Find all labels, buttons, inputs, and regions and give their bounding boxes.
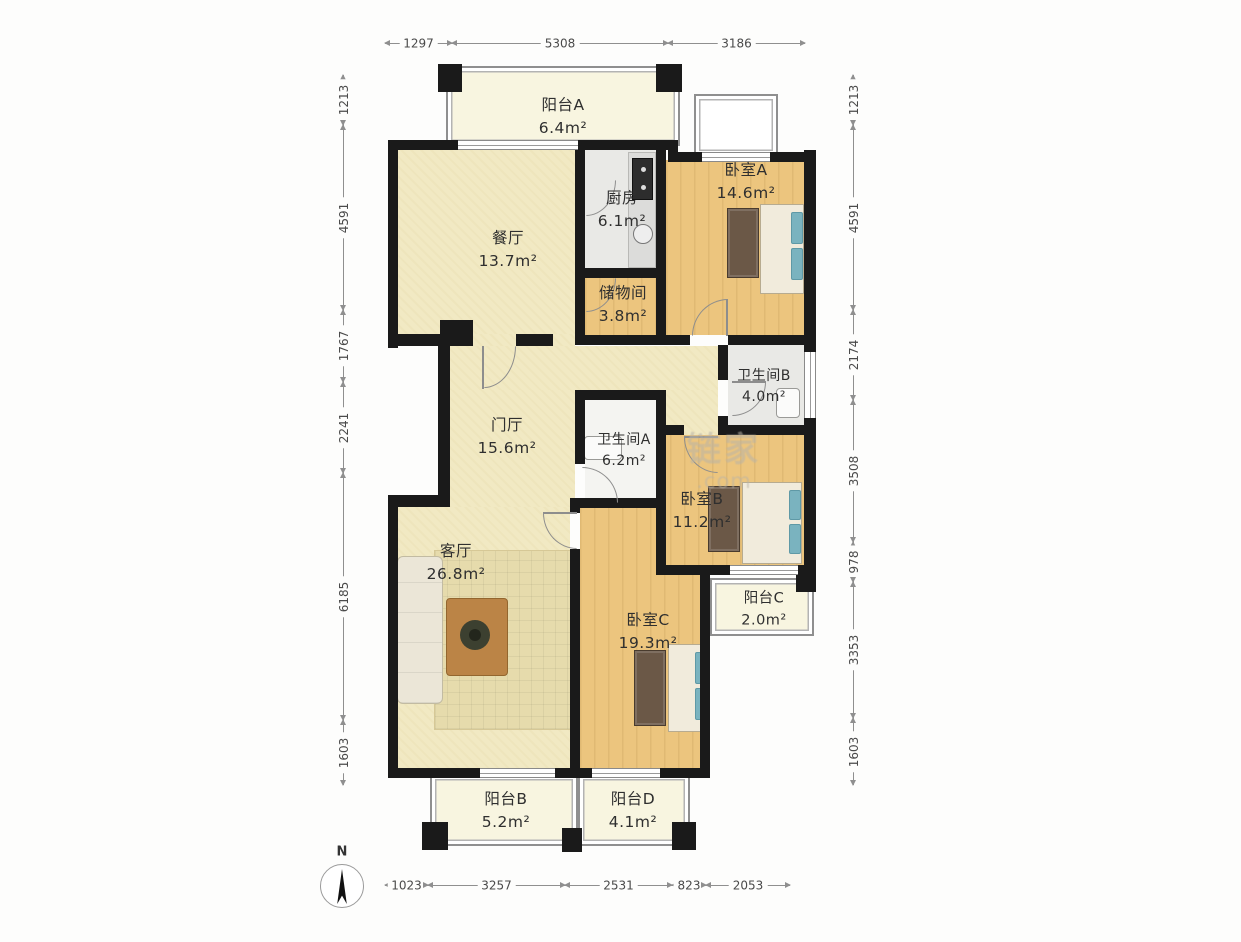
room-name: 卫生间A: [597, 430, 651, 451]
wall-post: [438, 64, 462, 92]
plant-icon: [460, 620, 490, 650]
north-label: N: [337, 845, 348, 860]
room-balcony-b-label: 阳台B 5.2m²: [482, 788, 530, 835]
dim-bottom-segment: 1023: [385, 885, 428, 886]
wall: [575, 268, 666, 278]
wall: [700, 565, 710, 778]
room-hall-label: 门厅 15.6m²: [478, 414, 537, 461]
bedroom-a-bay-window: [694, 94, 778, 156]
room-area: 26.8m²: [427, 563, 486, 586]
wall-post: [656, 64, 682, 92]
wall: [438, 334, 450, 507]
room-bedroom-a-label: 卧室A 14.6m²: [717, 159, 776, 206]
dim-value: 1023: [387, 878, 426, 892]
dim-bottom-segment: 2531: [565, 885, 672, 886]
pillow: [791, 248, 803, 280]
bedroom-c-balcony-d-door: [592, 768, 660, 778]
wall: [656, 150, 666, 345]
dim-right-segment: 1603: [853, 718, 854, 785]
dim-value: 5308: [541, 36, 580, 50]
dim-value: 3508: [847, 451, 861, 492]
dim-value: 1767: [337, 326, 351, 367]
room-name: 储物间: [599, 282, 647, 305]
room-area: 3.8m²: [599, 305, 647, 328]
dim-value: 1603: [337, 732, 351, 773]
wall: [575, 390, 585, 464]
room-area: 6.2m²: [597, 451, 651, 472]
room-name: 卫生间B: [737, 366, 791, 387]
dim-value: 6185: [337, 576, 351, 617]
room-name: 卧室A: [717, 159, 776, 182]
dim-left-segment: 2241: [343, 382, 344, 473]
pillow: [789, 524, 801, 554]
dim-left-segment: 6185: [343, 473, 344, 720]
bedroom-b-door-leaf: [684, 436, 718, 438]
wall: [668, 152, 702, 162]
room-area: 15.6m²: [478, 437, 537, 460]
dim-value: 1603: [847, 731, 861, 772]
room-balcony-c-label: 阳台C 2.0m²: [741, 588, 787, 632]
room-name: 卧室B: [673, 488, 732, 511]
wall-post: [796, 574, 816, 592]
room-storage-label: 储物间 3.8m²: [599, 282, 647, 329]
room-name: 阳台D: [609, 788, 657, 811]
dim-left-segment: 1213: [343, 75, 344, 125]
wall: [388, 140, 460, 150]
dim-right-segment: 3508: [853, 400, 854, 542]
dim-top-segment: 3186: [668, 43, 805, 44]
wall-post: [562, 828, 582, 852]
room-area: 4.1m²: [609, 811, 657, 834]
dim-value: 2531: [599, 878, 638, 892]
wall: [576, 140, 670, 150]
dim-right-segment: 978: [853, 542, 854, 582]
dim-value: 4591: [847, 197, 861, 238]
dim-bottom-segment: 3257: [428, 885, 565, 886]
room-area: 4.0m²: [737, 387, 791, 408]
room-area: 13.7m²: [479, 250, 538, 273]
room-bath-a-label: 卫生间A 6.2m²: [597, 430, 651, 472]
wall: [388, 768, 480, 778]
dim-right-segment: 4591: [853, 125, 854, 310]
room-name: 阳台A: [539, 94, 587, 117]
bedroom-c-door-leaf: [543, 512, 577, 514]
room-name: 餐厅: [479, 227, 538, 250]
dim-bottom-segment: 823: [672, 885, 706, 886]
room-area: 14.6m²: [717, 182, 776, 205]
wall: [516, 334, 553, 346]
dim-value: 2053: [729, 878, 768, 892]
room-living-label: 客厅 26.8m²: [427, 540, 486, 587]
room-area: 11.2m²: [673, 511, 732, 534]
wall: [656, 425, 684, 435]
floor-plan-image: 阳台A 6.4m² 餐厅 13.7m² 厨房 6.1m² 卧室A 14.6m² …: [0, 0, 1241, 942]
burner-icon: [641, 167, 646, 172]
wall: [575, 335, 690, 345]
dim-value: 3186: [717, 36, 756, 50]
dim-value: 3257: [477, 878, 516, 892]
room-name: 卧室C: [619, 609, 678, 632]
room-balcony-d-label: 阳台D 4.1m²: [609, 788, 657, 835]
wall: [728, 335, 806, 345]
wall: [718, 345, 728, 380]
room-name: 厨房: [598, 187, 646, 210]
room-bedroom-b-label: 卧室B 11.2m²: [673, 488, 732, 535]
dim-left-segment: 1767: [343, 310, 344, 382]
dining-window: [458, 140, 578, 150]
wall: [555, 768, 592, 778]
wall: [718, 425, 804, 435]
bedroom-b-balcony-c-door: [730, 565, 798, 575]
dim-value: 4591: [337, 197, 351, 238]
room-balcony-a-label: 阳台A 6.4m²: [539, 94, 587, 141]
room-bedroom-c-label: 卧室C 19.3m²: [619, 609, 678, 656]
dim-right-segment: 3353: [853, 582, 854, 718]
room-name: 门厅: [478, 414, 537, 437]
dim-value: 1213: [337, 80, 351, 121]
dim-value: 1297: [399, 36, 438, 50]
room-area: 19.3m²: [619, 632, 678, 655]
dim-value: 1213: [847, 80, 861, 121]
dim-right-segment: 1213: [853, 75, 854, 125]
wall-post: [422, 822, 448, 850]
room-name: 阳台C: [741, 588, 787, 610]
dim-value: 978: [847, 546, 861, 579]
room-name: 客厅: [427, 540, 486, 563]
wall: [656, 565, 730, 575]
wall: [570, 549, 580, 768]
bath-b-window: [804, 352, 816, 418]
bedroom-a-wardrobe: [727, 208, 759, 278]
dim-top-segment: 5308: [452, 43, 668, 44]
dim-value: 823: [674, 878, 705, 892]
living-balcony-b-door: [480, 768, 555, 778]
dim-bottom-segment: 2053: [706, 885, 790, 886]
room-area: 6.1m²: [598, 210, 646, 233]
room-area: 2.0m²: [741, 610, 787, 632]
wall-post: [672, 822, 696, 850]
wall: [575, 150, 585, 345]
room-name: 阳台B: [482, 788, 530, 811]
bedroom-a-door-leaf: [726, 299, 728, 336]
dim-top-segment: 1297: [385, 43, 452, 44]
room-dining-label: 餐厅 13.7m²: [479, 227, 538, 274]
pillow: [789, 490, 801, 520]
dim-left-segment: 4591: [343, 125, 344, 310]
wall: [388, 495, 398, 778]
room-area: 6.4m²: [539, 117, 587, 140]
dim-value: 2174: [847, 335, 861, 376]
wall: [718, 416, 728, 435]
entry-door-leaf: [482, 346, 484, 389]
room-bath-b-label: 卫生间B 4.0m²: [737, 366, 791, 408]
wall: [575, 390, 666, 400]
pillow: [791, 212, 803, 244]
bedroom-c-wardrobe: [634, 650, 666, 726]
dim-left-segment: 1603: [343, 720, 344, 785]
wall: [388, 140, 398, 348]
dim-right-segment: 2174: [853, 310, 854, 400]
room-area: 5.2m²: [482, 811, 530, 834]
dim-value: 2241: [337, 407, 351, 448]
room-kitchen-label: 厨房 6.1m²: [598, 187, 646, 234]
wall: [656, 390, 666, 575]
dim-value: 3353: [847, 630, 861, 671]
